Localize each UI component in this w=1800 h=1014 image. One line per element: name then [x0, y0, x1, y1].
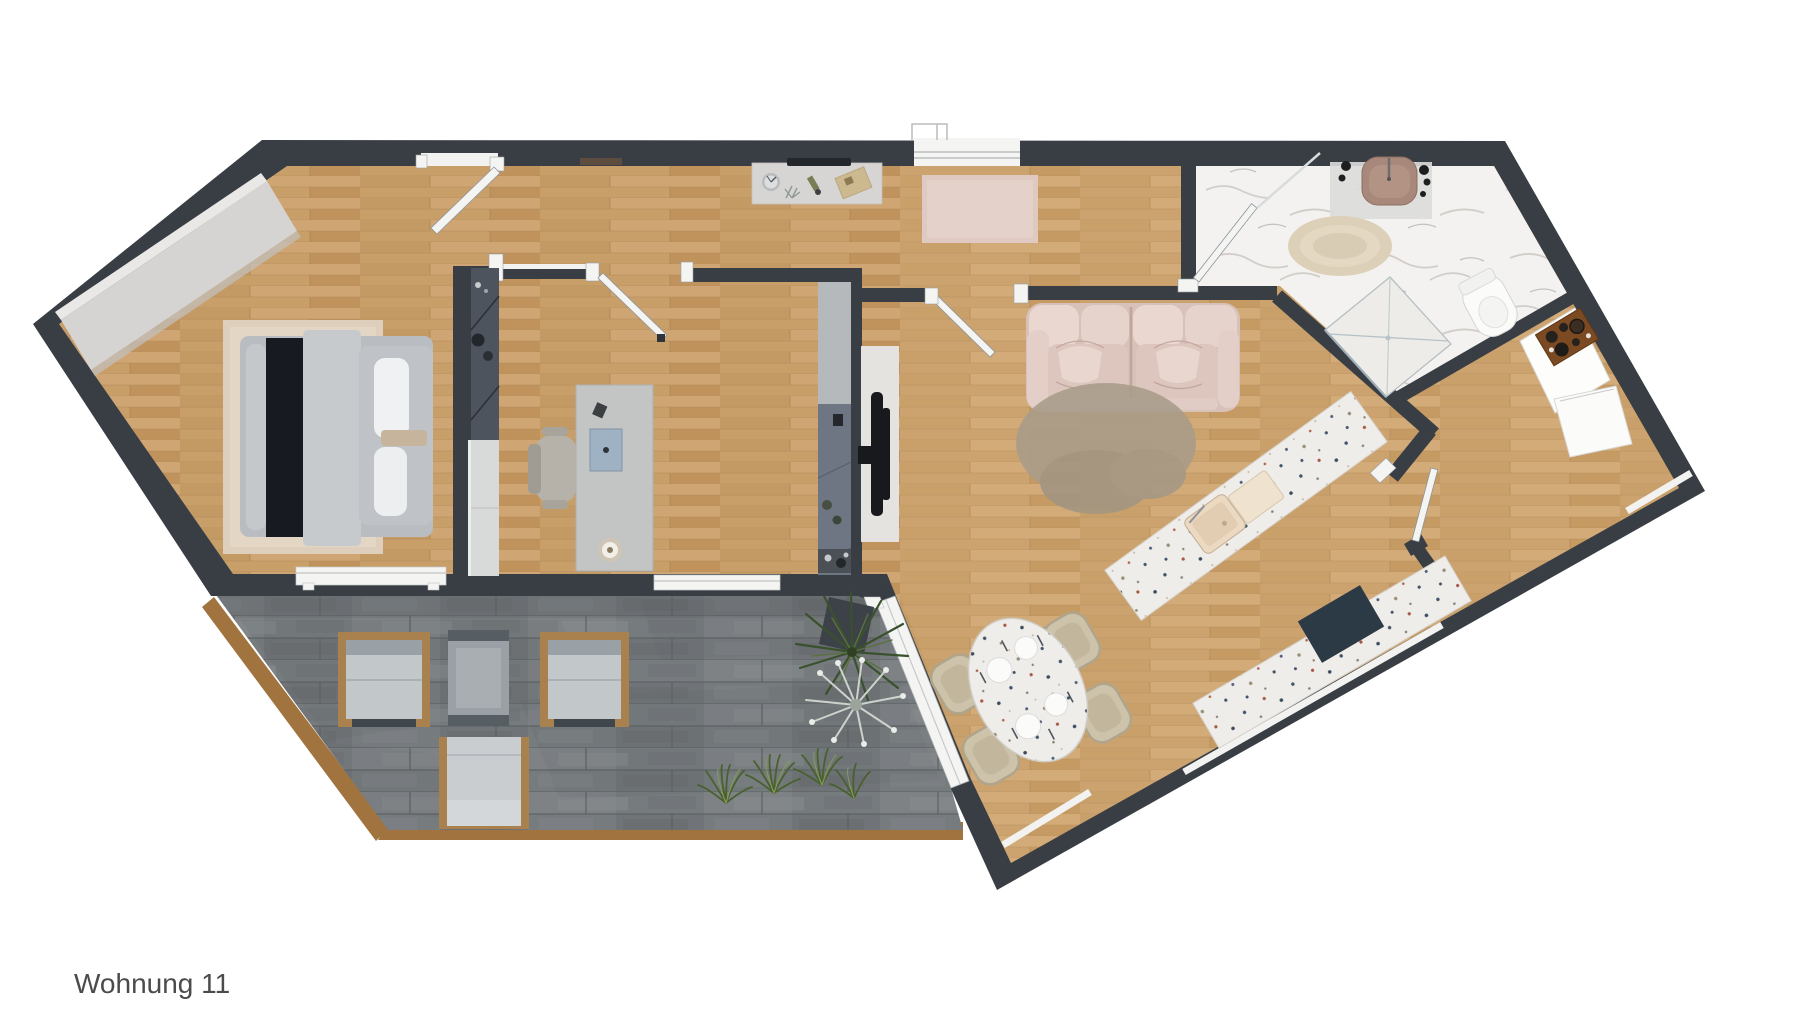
- svg-text:Wohnung 11: Wohnung 11: [74, 968, 230, 999]
